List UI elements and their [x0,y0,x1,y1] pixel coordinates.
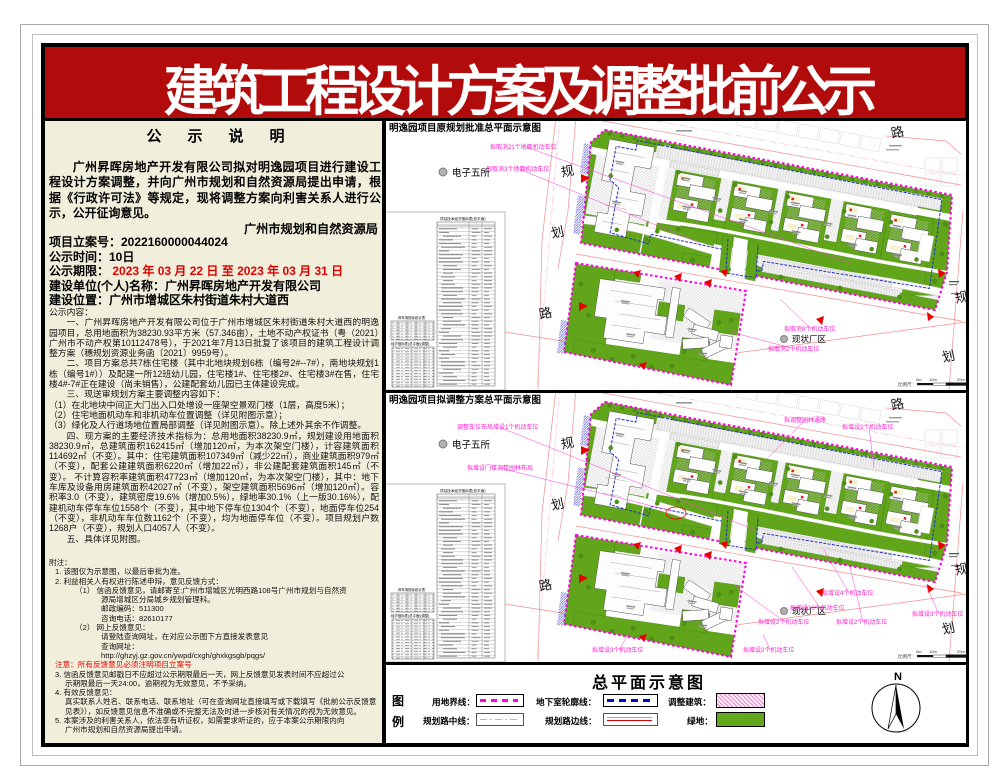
svg-text:拟增设2个机动车位: 拟增设2个机动车位 [842,423,893,431]
svg-text:拟取消2个机动车位: 拟取消2个机动车位 [768,345,819,353]
svg-text:拟增设4个机动车位: 拟增设4个机动车位 [822,589,873,597]
svg-text:拟增设2个机动车位: 拟增设2个机动车位 [758,618,809,626]
svg-text:拟取消8个机动车位: 拟取消8个机动车位 [784,325,835,333]
svg-text:拟增设2个机动车位: 拟增设2个机动车位 [743,646,794,654]
svg-text:拟增设2个机动车位: 拟增设2个机动车位 [836,618,887,626]
svg-text:拟取消21个地面机动车位: 拟取消21个地面机动车位 [490,143,557,151]
svg-text:拟调整园林通路: 拟调整园林通路 [784,416,826,424]
svg-text:拟增设门楼调整园林布局: 拟增设门楼调整园林布局 [467,464,533,472]
svg-text:明逸园项目原规划批准总平面示意图: 明逸园项目原规划批准总平面示意图 [389,122,541,134]
svg-text:N: N [894,671,902,683]
svg-text:明逸园项目拟调整方案总平面示意图: 明逸园项目拟调整方案总平面示意图 [389,394,541,406]
svg-text:拟增设3个机动车位: 拟增设3个机动车位 [592,646,643,654]
svg-text:拟取消3个地面机动车位: 拟取消3个地面机动车位 [486,165,549,173]
svg-text:拟增设10个机动车位: 拟增设10个机动车位 [790,604,845,612]
svg-text:调整车位布局增设1个机动车位: 调整车位布局增设1个机动车位 [457,423,538,431]
svg-text:拟增设3个机动车位: 拟增设3个机动车位 [912,610,963,618]
